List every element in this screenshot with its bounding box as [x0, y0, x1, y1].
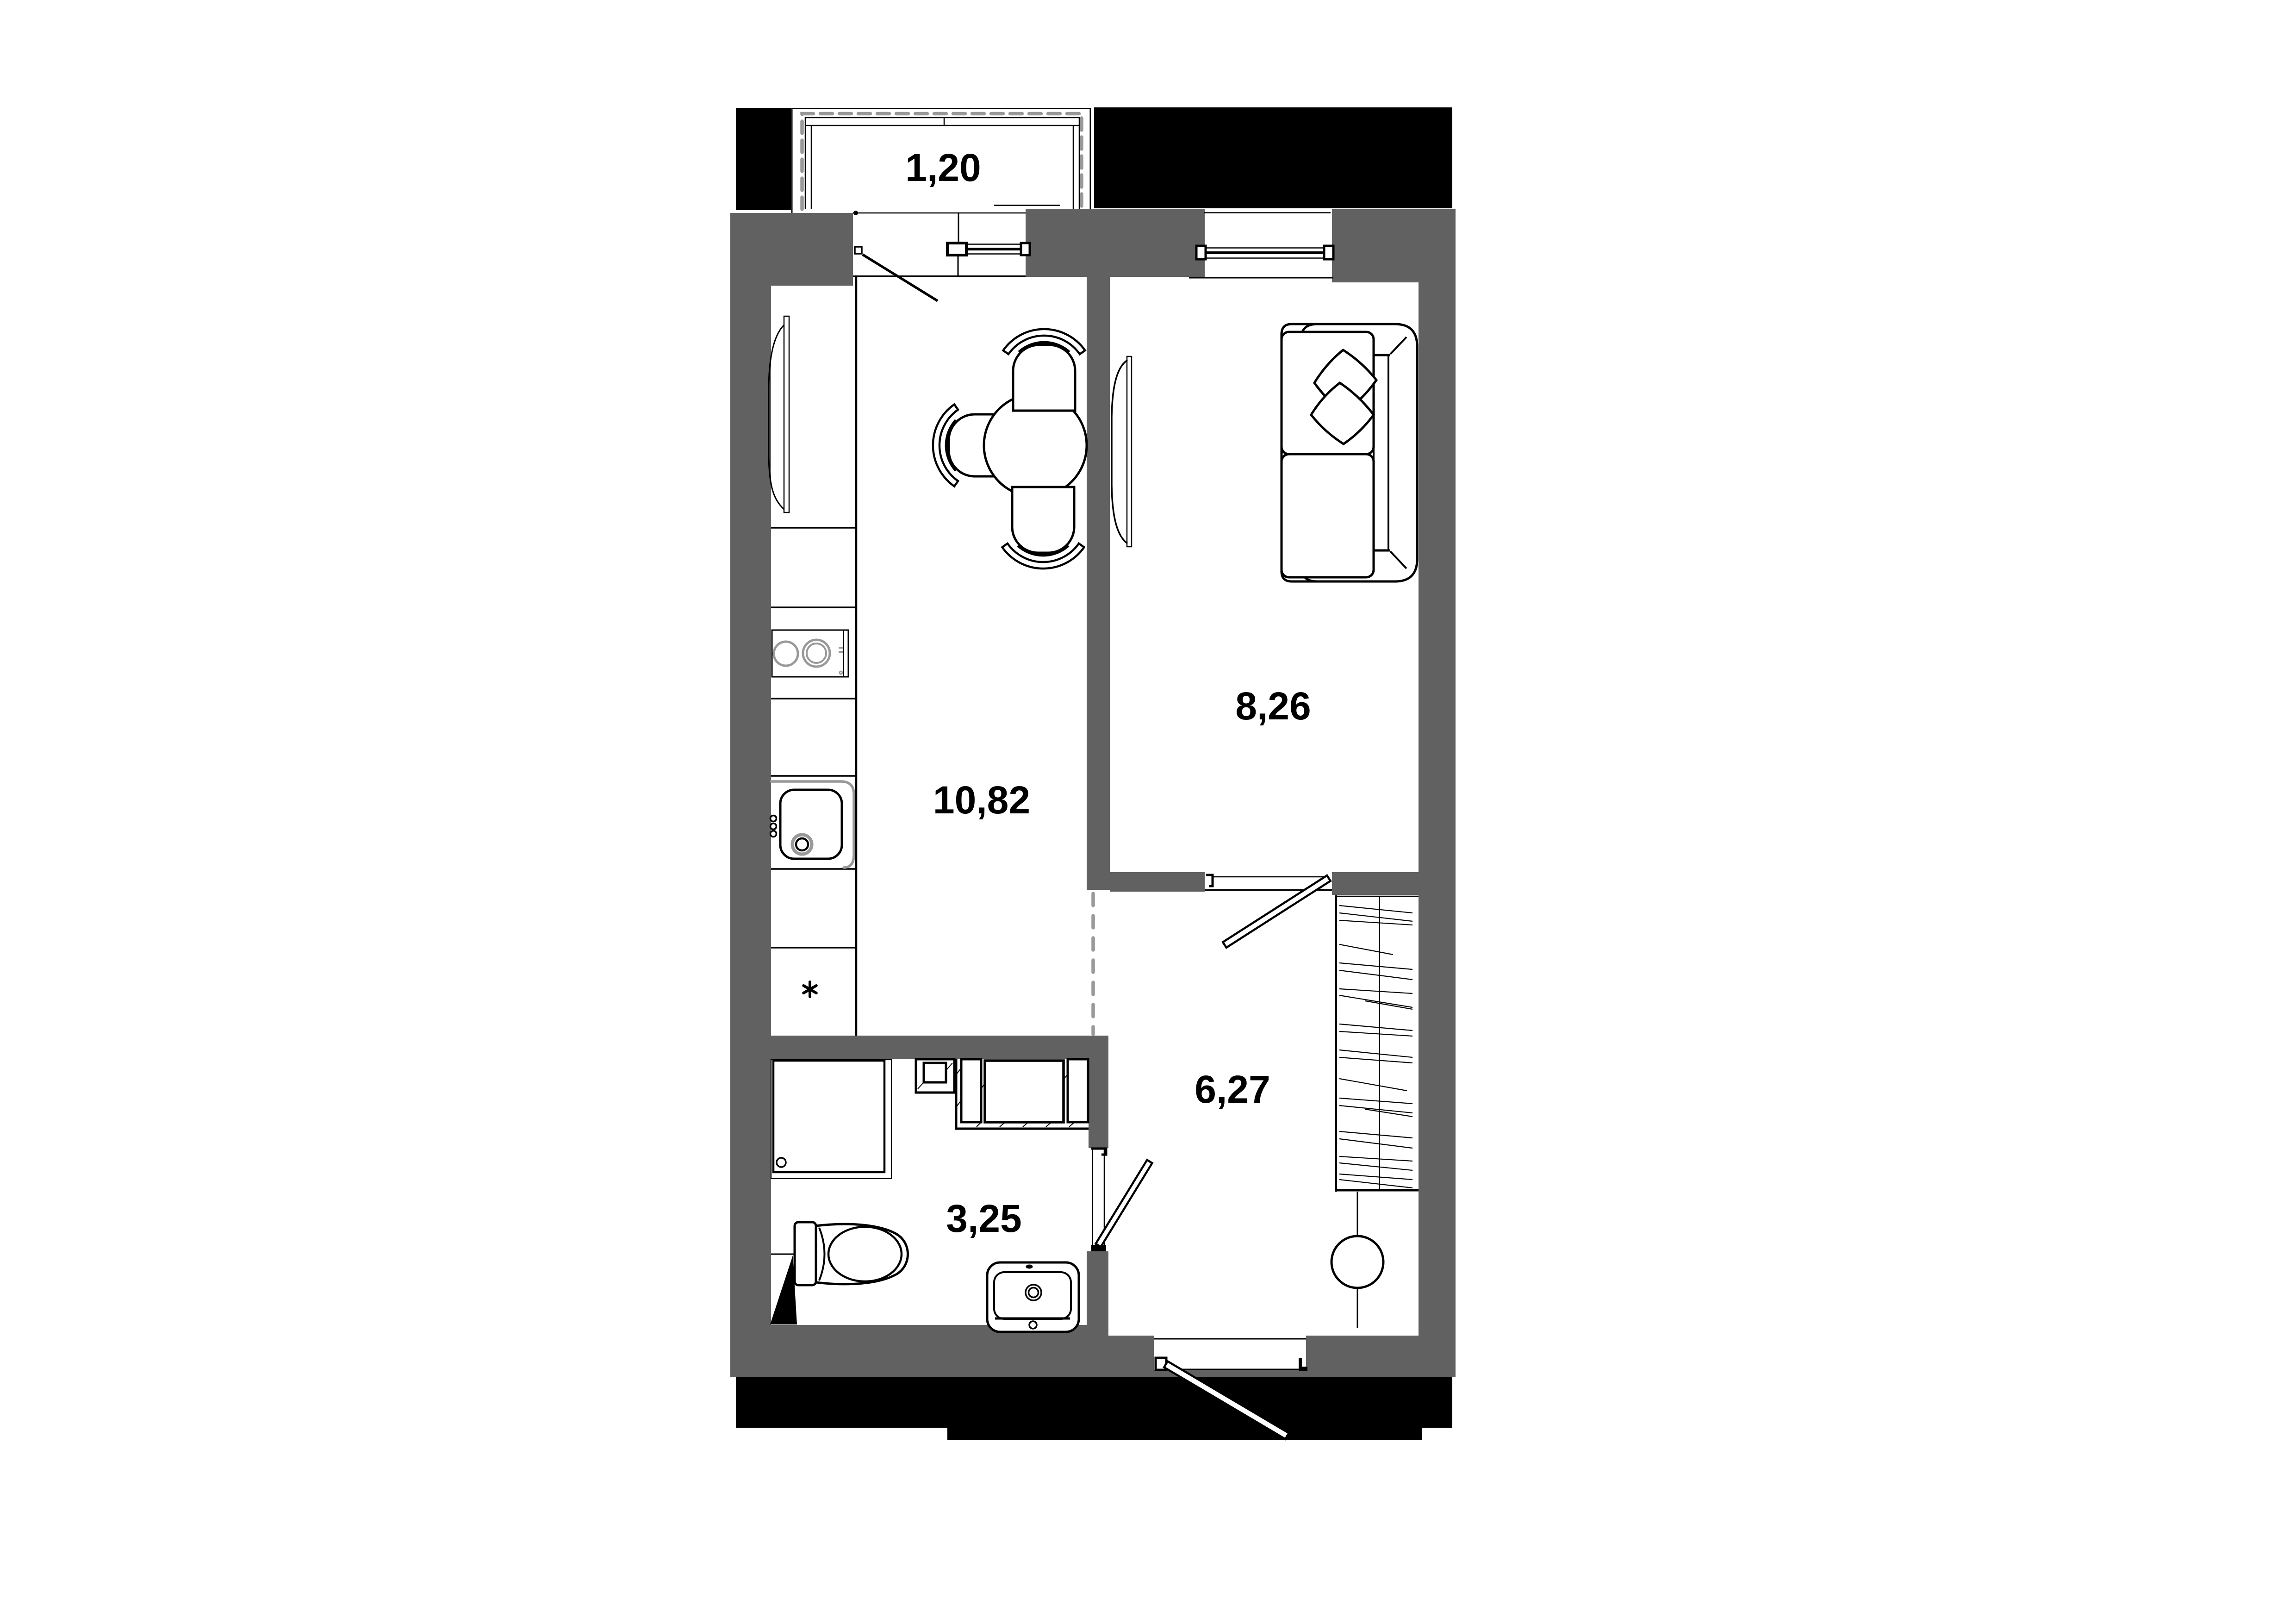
svg-text:8,26: 8,26: [1235, 684, 1311, 728]
svg-text:10,82: 10,82: [933, 778, 1030, 822]
svg-text:1,20: 1,20: [905, 146, 981, 189]
svg-text:3,25: 3,25: [946, 1197, 1022, 1240]
svg-text:6,27: 6,27: [1195, 1068, 1270, 1111]
